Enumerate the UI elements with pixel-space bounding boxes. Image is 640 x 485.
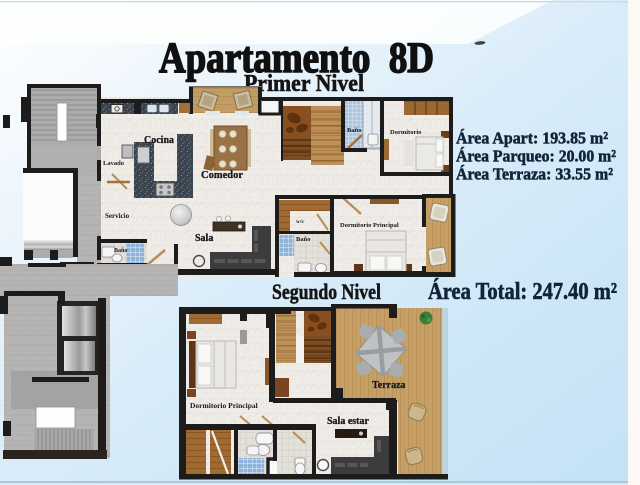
svg-text:Cocina: Cocina (144, 135, 174, 146)
svg-text:Área Parqueo: 20.00 m²: Área Parqueo: 20.00 m² (456, 147, 616, 166)
svg-text:Dormitorio: Dormitorio (390, 129, 421, 136)
svg-text:Área Total: 247.40 m²: Área Total: 247.40 m² (428, 279, 617, 305)
svg-text:Segundo Nivel: Segundo Nivel (272, 279, 381, 304)
svg-text:Dormitorio Principal: Dormitorio Principal (340, 222, 399, 229)
svg-text:Terraza: Terraza (372, 380, 406, 391)
svg-text:Baño: Baño (296, 236, 310, 243)
svg-text:Comedor: Comedor (201, 170, 243, 181)
svg-text:Servicio: Servicio (105, 212, 130, 220)
svg-text:Lavado: Lavado (103, 160, 124, 167)
svg-text:Área Apart: 193.85 m²: Área Apart: 193.85 m² (456, 129, 608, 148)
svg-text:Sala: Sala (195, 233, 213, 244)
svg-text:Baño: Baño (347, 127, 361, 134)
svg-text:Sala estar: Sala estar (327, 416, 370, 427)
svg-text:Área Terraza: 33.55 m²: Área Terraza: 33.55 m² (456, 165, 613, 184)
svg-text:Baño: Baño (114, 248, 127, 254)
svg-text:Primer Nivel: Primer Nivel (244, 71, 364, 97)
svg-text:Dormitorio Principal: Dormitorio Principal (190, 401, 258, 410)
svg-text:w/c: w/c (296, 219, 305, 225)
